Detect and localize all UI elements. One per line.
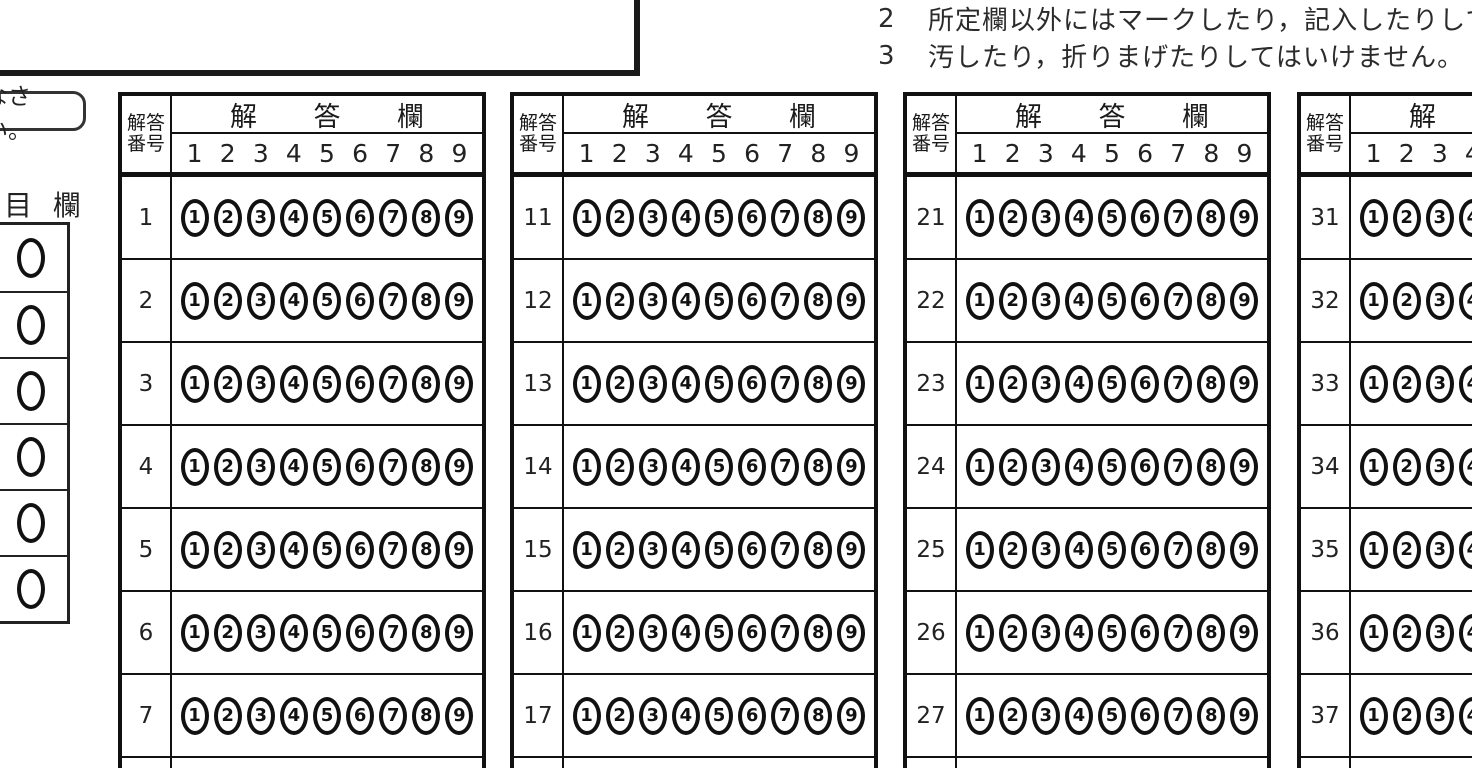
top-left-box xyxy=(0,0,640,76)
answer-bubble[interactable]: 5 xyxy=(1098,697,1126,735)
answer-bubble[interactable]: 3 xyxy=(247,448,275,486)
answer-row-bubbles: 123456789 xyxy=(172,343,482,424)
choice-number: 6 xyxy=(344,139,377,168)
answer-bubble[interactable]: 9 xyxy=(837,365,865,403)
answer-bubble[interactable]: 5 xyxy=(705,697,733,735)
answer-bubble[interactable]: 9 xyxy=(837,531,865,569)
answer-bubble[interactable]: 8 xyxy=(412,697,440,735)
bubble-slot: 1 xyxy=(1357,614,1390,652)
bubble-slot: 7 xyxy=(377,199,410,237)
answer-bubble[interactable]: 5 xyxy=(705,282,733,320)
answer-bubble[interactable]: 8 xyxy=(412,614,440,652)
answer-row-number: 26 xyxy=(907,592,957,673)
answer-bubble[interactable]: 5 xyxy=(1098,614,1126,652)
answer-bubble[interactable]: 3 xyxy=(1426,282,1454,320)
answer-row-bubbles: 123456789 xyxy=(957,592,1267,673)
answer-row-number: 35 xyxy=(1301,509,1351,590)
answer-bubble[interactable]: 7 xyxy=(1164,697,1192,735)
answer-bubble[interactable]: 6 xyxy=(346,365,374,403)
answer-bubble[interactable]: 5 xyxy=(313,365,341,403)
answer-bubble[interactable]: 9 xyxy=(445,697,473,735)
answer-bubble[interactable]: 5 xyxy=(1098,199,1126,237)
answer-bubble[interactable]: 2 xyxy=(1393,614,1421,652)
answer-bubble[interactable]: 3 xyxy=(247,697,275,735)
answer-bubble[interactable]: 1 xyxy=(181,614,209,652)
answer-bubble[interactable]: 5 xyxy=(313,282,341,320)
subject-bubble[interactable] xyxy=(17,238,45,278)
answer-bubble[interactable]: 4 xyxy=(672,531,700,569)
answer-bubble[interactable]: 2 xyxy=(606,448,634,486)
answer-bubble[interactable]: 4 xyxy=(1459,448,1472,486)
answer-bubble[interactable]: 6 xyxy=(1131,531,1159,569)
answer-bubble[interactable]: 7 xyxy=(379,365,407,403)
answer-row: 23123456789 xyxy=(907,341,1267,424)
answer-block-header: 解答番号解答欄123456789 xyxy=(907,96,1267,175)
answer-block: 解答番号解答欄123456789111234567891212345678913… xyxy=(510,92,878,768)
answer-bubble[interactable]: 9 xyxy=(1230,697,1258,735)
answer-bubble[interactable]: 4 xyxy=(1459,614,1472,652)
bubble-slot: 3 xyxy=(244,614,277,652)
answer-bubble[interactable]: 3 xyxy=(639,614,667,652)
choice-number-row: 123456789 xyxy=(172,134,482,172)
answer-bubble[interactable]: 7 xyxy=(1164,365,1192,403)
answer-bubble[interactable]: 1 xyxy=(181,697,209,735)
subject-bubble[interactable] xyxy=(17,569,45,609)
answer-bubble[interactable]: 9 xyxy=(1230,365,1258,403)
answer-row: 34123456789 xyxy=(1301,424,1472,507)
answer-bubble[interactable]: 1 xyxy=(181,199,209,237)
answer-bubble[interactable]: 6 xyxy=(1131,282,1159,320)
bubble-slot: 1 xyxy=(1357,697,1390,735)
answer-row: 35123456789 xyxy=(1301,507,1472,590)
answer-bubble[interactable]: 3 xyxy=(1032,614,1060,652)
answer-bubble[interactable]: 6 xyxy=(738,697,766,735)
answer-bubble[interactable]: 2 xyxy=(999,448,1027,486)
answer-bubble[interactable]: 6 xyxy=(346,697,374,735)
subject-bubble[interactable] xyxy=(17,503,45,543)
answer-bubble[interactable]: 7 xyxy=(379,199,407,237)
answer-bubble[interactable]: 7 xyxy=(771,365,799,403)
bubble-slot: 8 xyxy=(802,199,835,237)
bubble-slot: 1 xyxy=(570,448,603,486)
answer-bubble[interactable]: 1 xyxy=(966,448,994,486)
answer-bubble[interactable]: 8 xyxy=(412,448,440,486)
answer-bubble[interactable]: 3 xyxy=(639,365,667,403)
answer-bubble[interactable]: 2 xyxy=(214,282,242,320)
bubble-slot: 1 xyxy=(570,697,603,735)
bubble-slot: 9 xyxy=(443,199,476,237)
answer-bubble[interactable]: 1 xyxy=(1360,448,1388,486)
answer-bubble[interactable]: 7 xyxy=(771,697,799,735)
answer-bubble[interactable]: 4 xyxy=(1459,282,1472,320)
answer-row-bubbles: 123456789 xyxy=(172,509,482,590)
answer-bubble[interactable]: 4 xyxy=(1459,199,1472,237)
answer-bubble[interactable]: 9 xyxy=(837,448,865,486)
answer-bubble[interactable]: 2 xyxy=(1393,531,1421,569)
answer-bubble[interactable]: 7 xyxy=(1164,614,1192,652)
bubble-slot: 4 xyxy=(1456,614,1472,652)
bubble-slot: 4 xyxy=(1456,199,1472,237)
answer-bubble[interactable]: 5 xyxy=(705,199,733,237)
answer-bubble[interactable]: 9 xyxy=(445,282,473,320)
answer-bubble[interactable]: 4 xyxy=(1065,614,1093,652)
answer-row-number: 15 xyxy=(514,509,564,590)
answer-bubble[interactable]: 2 xyxy=(606,282,634,320)
answer-row-number: 18 xyxy=(514,758,564,768)
answer-bubble[interactable]: 6 xyxy=(738,365,766,403)
answer-row: 28123456789 xyxy=(907,756,1267,768)
answer-bubble[interactable]: 4 xyxy=(672,448,700,486)
answer-bubble[interactable]: 2 xyxy=(606,697,634,735)
answer-bubble[interactable]: 8 xyxy=(1197,365,1225,403)
answer-bubble[interactable]: 9 xyxy=(445,448,473,486)
answer-bubble[interactable]: 3 xyxy=(639,531,667,569)
answer-bubble[interactable]: 7 xyxy=(771,282,799,320)
partial-note-text: なさい。 xyxy=(0,77,76,145)
answer-row-number: 34 xyxy=(1301,426,1351,507)
answer-bubble[interactable]: 9 xyxy=(837,282,865,320)
answer-bubble[interactable]: 5 xyxy=(313,199,341,237)
choice-number-row: 123456789 xyxy=(1351,134,1472,172)
answer-bubble[interactable]: 3 xyxy=(247,365,275,403)
choice-number: 1 xyxy=(1357,139,1390,168)
answer-bubble[interactable]: 4 xyxy=(280,365,308,403)
subject-bubble[interactable] xyxy=(17,371,45,411)
answer-bubble[interactable]: 8 xyxy=(1197,531,1225,569)
choice-number: 7 xyxy=(377,139,410,168)
answer-bubble[interactable]: 2 xyxy=(999,697,1027,735)
answer-bubble[interactable]: 6 xyxy=(738,282,766,320)
answer-bubble[interactable]: 3 xyxy=(639,697,667,735)
answer-row: 16123456789 xyxy=(514,590,874,673)
answer-bubble[interactable]: 4 xyxy=(280,531,308,569)
answer-bubble[interactable]: 2 xyxy=(214,697,242,735)
answer-bubble[interactable]: 2 xyxy=(214,531,242,569)
answer-row: 24123456789 xyxy=(907,424,1267,507)
answer-bubble[interactable]: 5 xyxy=(313,697,341,735)
answer-bubble[interactable]: 7 xyxy=(1164,199,1192,237)
answer-bubble[interactable]: 3 xyxy=(1426,365,1454,403)
answer-bubble[interactable]: 2 xyxy=(606,199,634,237)
answer-bubble[interactable]: 4 xyxy=(1065,448,1093,486)
bubble-slot: 9 xyxy=(835,282,868,320)
answer-row: 31123456789 xyxy=(1301,175,1472,258)
answer-bubble[interactable]: 1 xyxy=(1360,365,1388,403)
answer-bubble[interactable]: 4 xyxy=(672,282,700,320)
bubble-slot: 6 xyxy=(344,448,377,486)
bubble-slot: 2 xyxy=(211,365,244,403)
bubble-slot: 4 xyxy=(277,365,310,403)
answer-bubble[interactable]: 6 xyxy=(738,448,766,486)
bubble-slot: 3 xyxy=(244,199,277,237)
answer-bubble[interactable]: 4 xyxy=(280,697,308,735)
answer-bubble[interactable]: 3 xyxy=(1032,448,1060,486)
answer-bubble[interactable]: 3 xyxy=(247,282,275,320)
answer-bubble[interactable]: 6 xyxy=(1131,448,1159,486)
answer-bubble[interactable]: 8 xyxy=(804,282,832,320)
answer-bubble[interactable]: 4 xyxy=(1065,697,1093,735)
answer-bubble[interactable]: 5 xyxy=(705,614,733,652)
answer-bubble[interactable]: 6 xyxy=(738,199,766,237)
bubble-slot: 2 xyxy=(603,282,636,320)
bubble-slot: 1 xyxy=(1357,365,1390,403)
answer-bubble[interactable]: 8 xyxy=(412,199,440,237)
answer-bubble[interactable]: 3 xyxy=(247,531,275,569)
answer-row: 38123456789 xyxy=(1301,756,1472,768)
answer-bubble[interactable]: 4 xyxy=(1065,199,1093,237)
answer-bubble[interactable]: 7 xyxy=(1164,448,1192,486)
answer-bubble[interactable]: 2 xyxy=(214,614,242,652)
bubble-slot: 1 xyxy=(963,448,996,486)
answer-bubble[interactable]: 2 xyxy=(606,365,634,403)
answer-bubble[interactable]: 4 xyxy=(1065,282,1093,320)
answer-bubble[interactable]: 5 xyxy=(1098,365,1126,403)
answer-bubble[interactable]: 1 xyxy=(1360,614,1388,652)
answer-bubble[interactable]: 4 xyxy=(672,365,700,403)
answer-bubble[interactable]: 6 xyxy=(1131,199,1159,237)
answer-row-number: 7 xyxy=(122,675,172,756)
answer-bubble[interactable]: 8 xyxy=(804,531,832,569)
answer-bubble[interactable]: 6 xyxy=(346,614,374,652)
answer-bubble[interactable]: 1 xyxy=(573,697,601,735)
answer-bubble[interactable]: 7 xyxy=(379,697,407,735)
answer-row-number: 31 xyxy=(1301,177,1351,258)
choice-number: 1 xyxy=(570,139,603,168)
answer-block-header: 解答番号解答欄123456789 xyxy=(122,96,482,175)
answer-bubble[interactable]: 3 xyxy=(1032,365,1060,403)
answer-bubble[interactable]: 2 xyxy=(1393,365,1421,403)
answer-bubble[interactable]: 3 xyxy=(1426,614,1454,652)
answer-bubble[interactable]: 2 xyxy=(214,199,242,237)
answer-column-title: 解答欄 xyxy=(172,96,482,134)
answer-bubble[interactable]: 9 xyxy=(1230,531,1258,569)
answer-bubble[interactable]: 3 xyxy=(639,282,667,320)
bubble-slot: 8 xyxy=(1195,282,1228,320)
bubble-slot: 1 xyxy=(178,614,211,652)
answer-bubble[interactable]: 8 xyxy=(1197,448,1225,486)
answer-row-bubbles: 123456789 xyxy=(172,426,482,507)
answer-bubble[interactable]: 3 xyxy=(247,199,275,237)
answer-bubble[interactable]: 1 xyxy=(1360,199,1388,237)
answer-bubble[interactable]: 1 xyxy=(573,531,601,569)
answer-bubble[interactable]: 1 xyxy=(573,199,601,237)
bubble-slot: 1 xyxy=(1357,448,1390,486)
answer-bubble[interactable]: 1 xyxy=(966,531,994,569)
bubble-slot: 2 xyxy=(996,282,1029,320)
answer-bubble[interactable]: 7 xyxy=(379,531,407,569)
answer-bubble[interactable]: 8 xyxy=(412,365,440,403)
bubble-slot: 2 xyxy=(1390,282,1423,320)
answer-bubble[interactable]: 6 xyxy=(346,199,374,237)
answer-bubble[interactable]: 9 xyxy=(837,697,865,735)
answer-bubble[interactable]: 6 xyxy=(346,448,374,486)
answer-bubble[interactable]: 2 xyxy=(999,531,1027,569)
bubble-slot: 6 xyxy=(1129,531,1162,569)
answer-bubble[interactable]: 4 xyxy=(672,697,700,735)
answer-bubble[interactable]: 5 xyxy=(705,365,733,403)
answer-bubble[interactable]: 1 xyxy=(966,365,994,403)
answer-bubble[interactable]: 2 xyxy=(999,199,1027,237)
bubble-slot: 9 xyxy=(443,282,476,320)
bubble-slot: 7 xyxy=(377,448,410,486)
answer-bubble[interactable]: 7 xyxy=(771,614,799,652)
answer-bubble[interactable]: 8 xyxy=(804,697,832,735)
answer-bubble[interactable]: 1 xyxy=(181,531,209,569)
answer-bubble[interactable]: 4 xyxy=(280,282,308,320)
answer-bubble[interactable]: 2 xyxy=(1393,448,1421,486)
answer-bubble[interactable]: 2 xyxy=(606,531,634,569)
answer-bubble[interactable]: 4 xyxy=(672,614,700,652)
answer-bubble[interactable]: 3 xyxy=(1032,282,1060,320)
answer-number-label-line2: 番号 xyxy=(127,134,165,155)
answer-bubble[interactable]: 9 xyxy=(1230,199,1258,237)
answer-bubble[interactable]: 4 xyxy=(672,199,700,237)
answer-bubble[interactable]: 7 xyxy=(379,614,407,652)
answer-bubble[interactable]: 3 xyxy=(639,448,667,486)
answer-bubble[interactable]: 9 xyxy=(837,199,865,237)
answer-bubble[interactable]: 7 xyxy=(379,282,407,320)
answer-bubble[interactable]: 4 xyxy=(280,448,308,486)
answer-bubble[interactable]: 2 xyxy=(214,365,242,403)
answer-bubble[interactable]: 3 xyxy=(1426,697,1454,735)
answer-bubble[interactable]: 9 xyxy=(1230,614,1258,652)
answer-bubble[interactable]: 1 xyxy=(1360,531,1388,569)
answer-number-label-line2: 番号 xyxy=(912,134,950,155)
bubble-slot: 5 xyxy=(1095,614,1128,652)
answer-bubble[interactable]: 2 xyxy=(214,448,242,486)
answer-bubble[interactable]: 9 xyxy=(1230,282,1258,320)
answer-bubble[interactable]: 3 xyxy=(1032,199,1060,237)
answer-bubble[interactable]: 1 xyxy=(573,448,601,486)
answer-bubble[interactable]: 7 xyxy=(771,448,799,486)
answer-bubble[interactable]: 1 xyxy=(573,365,601,403)
answer-bubble[interactable]: 3 xyxy=(639,199,667,237)
answer-column-title-char: 欄 xyxy=(1182,95,1209,134)
answer-bubble[interactable]: 1 xyxy=(573,282,601,320)
answer-row: 3123456789 xyxy=(122,341,482,424)
bubble-slot: 2 xyxy=(1390,697,1423,735)
answer-bubble[interactable]: 4 xyxy=(1459,365,1472,403)
subject-cell xyxy=(0,357,67,423)
answer-bubble[interactable]: 6 xyxy=(346,282,374,320)
answer-bubble[interactable]: 8 xyxy=(804,614,832,652)
bubble-slot: 9 xyxy=(1228,199,1261,237)
answer-bubble[interactable]: 9 xyxy=(445,531,473,569)
answer-bubble[interactable]: 1 xyxy=(966,614,994,652)
bubble-slot: 4 xyxy=(277,697,310,735)
answer-bubble[interactable]: 1 xyxy=(181,365,209,403)
choice-number: 3 xyxy=(636,139,669,168)
answer-bubble[interactable]: 5 xyxy=(705,448,733,486)
answer-bubble[interactable]: 8 xyxy=(804,448,832,486)
answer-row-number: 14 xyxy=(514,426,564,507)
answer-bubble[interactable]: 6 xyxy=(1131,697,1159,735)
answer-bubble[interactable]: 5 xyxy=(313,531,341,569)
answer-bubble[interactable]: 8 xyxy=(804,199,832,237)
answer-bubble[interactable]: 6 xyxy=(738,614,766,652)
answer-block: 解答番号解答欄123456789112345678921234567893123… xyxy=(118,92,486,768)
subject-bubble[interactable] xyxy=(17,305,45,345)
answer-bubble[interactable]: 1 xyxy=(966,697,994,735)
answer-bubble[interactable]: 1 xyxy=(1360,282,1388,320)
bubble-slot: 1 xyxy=(178,199,211,237)
answer-bubble[interactable]: 9 xyxy=(445,614,473,652)
answer-bubble[interactable]: 1 xyxy=(181,448,209,486)
subject-bubble[interactable] xyxy=(17,437,45,477)
instruction-number: 2 xyxy=(878,4,902,34)
answer-bubble[interactable]: 8 xyxy=(1197,199,1225,237)
answer-bubble[interactable]: 2 xyxy=(999,282,1027,320)
answer-bubble[interactable]: 4 xyxy=(1065,365,1093,403)
answer-bubble[interactable]: 7 xyxy=(1164,282,1192,320)
answer-bubble[interactable]: 8 xyxy=(412,282,440,320)
answer-bubble[interactable]: 4 xyxy=(1065,531,1093,569)
bubble-slot: 3 xyxy=(1423,531,1456,569)
answer-bubble[interactable]: 2 xyxy=(606,614,634,652)
answer-bubble[interactable]: 7 xyxy=(1164,531,1192,569)
answer-bubble[interactable]: 8 xyxy=(1197,614,1225,652)
answer-bubble[interactable]: 8 xyxy=(412,531,440,569)
answer-bubble[interactable]: 5 xyxy=(1098,531,1126,569)
bubble-slot: 5 xyxy=(1095,199,1128,237)
answer-bubble[interactable]: 3 xyxy=(247,614,275,652)
answer-bubble[interactable]: 2 xyxy=(999,365,1027,403)
answer-bubble[interactable]: 4 xyxy=(1459,697,1472,735)
answer-bubble[interactable]: 8 xyxy=(1197,282,1225,320)
answer-bubble[interactable]: 2 xyxy=(999,614,1027,652)
answer-bubble[interactable]: 1 xyxy=(573,614,601,652)
answer-bubble[interactable]: 8 xyxy=(1197,697,1225,735)
answer-bubble[interactable]: 1 xyxy=(966,282,994,320)
answer-bubble[interactable]: 6 xyxy=(1131,614,1159,652)
answer-bubble[interactable]: 9 xyxy=(837,614,865,652)
answer-bubble[interactable]: 9 xyxy=(1230,448,1258,486)
answer-bubble[interactable]: 3 xyxy=(1426,531,1454,569)
answer-bubble[interactable]: 1 xyxy=(1360,697,1388,735)
answer-bubble[interactable]: 6 xyxy=(1131,365,1159,403)
answer-bubble[interactable]: 6 xyxy=(346,531,374,569)
answer-bubble[interactable]: 2 xyxy=(1393,199,1421,237)
answer-bubble[interactable]: 6 xyxy=(738,531,766,569)
answer-row-bubbles: 123456789 xyxy=(1351,592,1472,673)
answer-bubble[interactable]: 5 xyxy=(313,448,341,486)
answer-bubble[interactable]: 8 xyxy=(804,365,832,403)
answer-bubble[interactable]: 5 xyxy=(1098,448,1126,486)
answer-bubble[interactable]: 5 xyxy=(1098,282,1126,320)
answer-bubble[interactable]: 3 xyxy=(1426,199,1454,237)
answer-bubble[interactable]: 2 xyxy=(1393,697,1421,735)
answer-bubble[interactable]: 1 xyxy=(966,199,994,237)
answer-bubble[interactable]: 3 xyxy=(1032,697,1060,735)
answer-bubble[interactable]: 4 xyxy=(280,199,308,237)
answer-bubble[interactable]: 3 xyxy=(1426,448,1454,486)
answer-bubble[interactable]: 9 xyxy=(445,365,473,403)
answer-bubble[interactable]: 4 xyxy=(280,614,308,652)
answer-bubble[interactable]: 7 xyxy=(771,531,799,569)
answer-bubble[interactable]: 2 xyxy=(1393,282,1421,320)
answer-bubble[interactable]: 5 xyxy=(705,531,733,569)
answer-bubble[interactable]: 7 xyxy=(771,199,799,237)
answer-bubble[interactable]: 1 xyxy=(181,282,209,320)
answer-bubble[interactable]: 4 xyxy=(1459,531,1472,569)
answer-bubble[interactable]: 7 xyxy=(379,448,407,486)
answer-bubble[interactable]: 3 xyxy=(1032,531,1060,569)
bubble-slot: 1 xyxy=(963,531,996,569)
answer-row-bubbles: 123456789 xyxy=(564,177,874,258)
bubble-slot: 9 xyxy=(1228,365,1261,403)
answer-bubble[interactable]: 9 xyxy=(445,199,473,237)
answer-bubble[interactable]: 5 xyxy=(313,614,341,652)
